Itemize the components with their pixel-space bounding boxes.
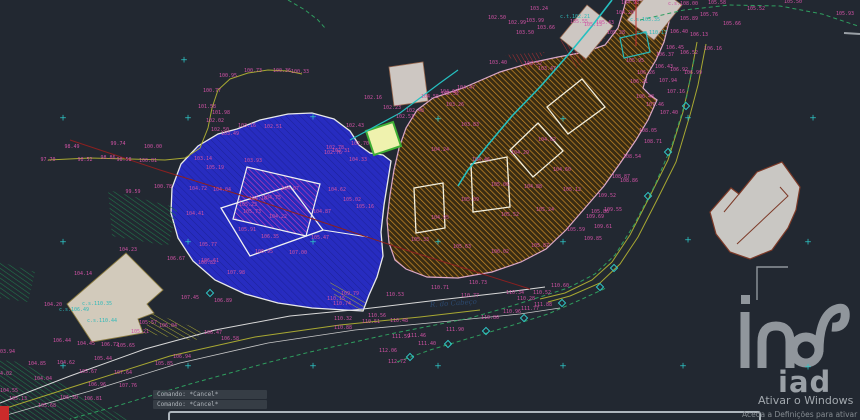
elevation-label: 107.45 (181, 295, 199, 301)
elevation-label: c.s.110.17 (637, 30, 667, 36)
grid-cross-icon: + (59, 115, 67, 124)
windows-activation-subtitle: Aceda a Definições para ativar o Windows… (742, 410, 860, 419)
elevation-label: 107.64 (114, 370, 132, 376)
elevation-label: 107.94 (659, 78, 677, 84)
elevation-label: 100.00 (144, 144, 162, 150)
elevation-label: 106.99 (684, 70, 702, 76)
grid-cross-icon: + (309, 114, 317, 123)
elevation-label: 104.04 (213, 187, 231, 193)
elevation-label: 110.86 (481, 315, 499, 321)
elevation-label: 112.72 (388, 359, 406, 365)
elevation-label: 104.23 (119, 247, 137, 253)
elevation-label: 110.53 (386, 292, 404, 298)
elevation-label: 107.00 (289, 250, 307, 256)
elevation-label: 105.73 (243, 209, 261, 215)
grid-cross-icon: + (59, 363, 67, 372)
building-right-large[interactable] (710, 162, 800, 259)
elevation-label: 106.16 (704, 46, 722, 52)
elevation-label: 106.35 (261, 234, 279, 240)
elevation-label: 102.02 (206, 118, 224, 124)
elevation-label: 106.89 (214, 298, 232, 304)
elevation-label: 104.47 (457, 85, 475, 91)
elevation-label: 100.33 (291, 69, 309, 75)
parcel-b-boundary[interactable] (387, 0, 671, 278)
elevation-label: 106.82 (198, 260, 216, 266)
elevation-label: 104.24 (431, 147, 449, 153)
elevation-label: 104.93 (621, 0, 639, 6)
elevation-label: 106.40 (670, 29, 688, 35)
elevation-label: 102.78 (326, 145, 344, 151)
elevation-label: 105.28 (607, 30, 625, 36)
elevation-label: 100.36 (273, 68, 291, 74)
grid-cross-icon: + (684, 115, 692, 124)
elevation-label: 104.62 (328, 187, 346, 193)
grid-cross-icon: + (180, 57, 188, 66)
elevation-label: 105.50 (784, 0, 802, 5)
elevation-label: 98.58 (116, 157, 131, 163)
elevation-label: 104.07 (281, 186, 299, 192)
elevation-label: 110.60 (551, 283, 569, 289)
elevation-label: 106.81 (84, 396, 102, 402)
elevation-label: 106.04 (159, 323, 177, 329)
grid-cross-icon: + (184, 115, 192, 124)
elevation-label: 108.54 (623, 154, 641, 160)
elevation-label: 103.14 (194, 156, 212, 162)
grid-cross-icon: + (434, 116, 442, 125)
elevation-label: 102.51 (264, 124, 282, 130)
elevation-label: 110.88 (334, 325, 352, 331)
elevation-label: 104.14 (74, 271, 92, 277)
elevation-label: 102.53 (396, 114, 414, 120)
elevation-label: 103.47 (538, 66, 556, 72)
elevation-label: 105.68 (38, 403, 56, 409)
elevation-label: 104.85 (28, 361, 46, 367)
elevation-label: 106.37 (656, 52, 674, 58)
elevation-label: 107.76 (119, 383, 137, 389)
elevation-label: 110.96 (503, 309, 521, 315)
elevation-label: 109.85 (584, 236, 602, 242)
elevation-label: 106.96 (88, 382, 106, 388)
elevation-label: 105.66 (723, 21, 741, 27)
elevation-label: 106.44 (53, 338, 71, 344)
elevation-label: 103.99 (526, 18, 544, 24)
elevation-label: 104.55 (0, 388, 18, 394)
elevation-label: 104.20 (616, 10, 634, 16)
drawing-canvas (0, 0, 860, 420)
elevation-label: 111.46 (408, 333, 426, 339)
elevation-label: 106.95 (255, 249, 273, 255)
elevation-label: 103.94 (0, 349, 15, 355)
elevation-label: 110.32 (334, 316, 352, 322)
cad-viewport[interactable]: 97.7098.4998.5298.8698.5899.74100.00100.… (0, 0, 860, 420)
elevation-label: 104.04 (34, 376, 52, 382)
grid-cross-icon: + (434, 363, 442, 372)
elevation-label: 98.52 (77, 157, 92, 163)
elevation-label: 105.52 (501, 212, 519, 218)
elevation-label: 104.20 (44, 302, 62, 308)
grid-cross-icon: + (684, 237, 692, 246)
grid-cross-icon: + (804, 239, 812, 248)
elevation-label: 103.83 (461, 122, 479, 128)
elevation-label: 103.26 (446, 102, 464, 108)
elevation-label: 105.87 (531, 243, 549, 249)
elevation-label: 111.40 (418, 341, 436, 347)
parcel-b-orange[interactable] (387, 0, 671, 278)
contour-top-center (288, 0, 325, 28)
elevation-label: 104.72 (189, 186, 207, 192)
elevation-label: 112.06 (379, 348, 397, 354)
elevation-label: 109.52 (598, 193, 616, 199)
grid-cross-icon: + (679, 363, 687, 372)
elevation-label: 107.40 (660, 110, 678, 116)
elevation-label: 104.33 (349, 157, 367, 163)
elevation-label: 104.88 (524, 184, 542, 190)
elevation-label: 100.78 (154, 184, 172, 190)
elevation-label: 98.86 (100, 155, 115, 161)
elevation-label: 105.95 (626, 58, 644, 64)
elevation-label: 105.12 (563, 187, 581, 193)
elevation-label: 105.44 (94, 356, 112, 362)
elevation-label: 97.70 (40, 157, 55, 163)
elevation-label: 105.02 (343, 197, 361, 203)
elevation-label: 105.63 (453, 244, 471, 250)
elevation-label: 108.86 (620, 178, 638, 184)
elevation-label: c.t.102.21 (560, 14, 590, 20)
command-input-bar[interactable] (168, 411, 761, 420)
elevation-label: 108.05 (639, 128, 657, 134)
elevation-label: 103.49 (221, 131, 239, 137)
elevation-label: 106.52 (680, 50, 698, 56)
elevation-label: 104.87 (313, 209, 331, 215)
elevation-label: 105.93 (836, 11, 854, 17)
elevation-label: 105.33 (411, 237, 429, 243)
elevation-label: 100.81 (139, 158, 157, 164)
elevation-label: c.s.106.49 (59, 307, 89, 313)
elevation-label: 106.30 (60, 395, 78, 401)
elevation-label: 110.28 (517, 296, 535, 302)
elevation-label: 102.23 (383, 105, 401, 111)
elevation-label: 110.73 (469, 280, 487, 286)
elevation-label: 102.50 (488, 15, 506, 21)
red-marker-corner (0, 406, 9, 420)
elevation-label: 105.65 (117, 343, 135, 349)
elevation-label: 98.49 (64, 144, 79, 150)
grid-cross-icon: + (809, 115, 817, 124)
elevation-label: 103.40 (489, 60, 507, 66)
elevation-label: 105.67 (79, 369, 97, 375)
elevation-label: 102.43 (346, 123, 364, 129)
elevation-label: 105.52 (747, 6, 765, 12)
grid-cross-icon: + (59, 239, 67, 248)
grid-cross-icon: + (559, 116, 567, 125)
elevation-label: 104.75 (263, 195, 281, 201)
elevation-label: 104.22 (269, 214, 287, 220)
slope-hatch-edge (0, 262, 35, 302)
elevation-label: c.s.108.00 (668, 1, 698, 7)
elevation-label: 105.06 (491, 182, 509, 188)
elevation-label: 104.45 (77, 341, 95, 347)
elevation-label: 102.70 (351, 141, 369, 147)
elevation-label: 105.43 (596, 20, 614, 26)
elevation-label: 109.61 (594, 224, 612, 230)
elevation-label: 105.13 (9, 396, 27, 402)
iad-logo-monogram (741, 267, 845, 368)
elevation-label: 111.90 (446, 327, 464, 333)
elevation-label: 105.24 (536, 207, 554, 213)
elevation-label: 110.74 (333, 301, 351, 307)
grid-cross-icon: + (434, 239, 442, 248)
elevation-label: 105.23 (239, 202, 257, 208)
elevation-label: 105.86 (591, 209, 609, 215)
building-highlighted-yellow[interactable] (366, 122, 401, 155)
elevation-label: 107.46 (646, 102, 664, 108)
elevation-label: 110.52 (533, 290, 551, 296)
elevation-label: 106.48 (636, 94, 654, 100)
elevation-label: 106.94 (173, 354, 191, 360)
elevation-label: 106.26 (637, 70, 655, 76)
elevation-label: 105.16 (356, 204, 374, 210)
elevation-label: 100.73 (244, 68, 262, 74)
elevation-label: 110.48 (390, 318, 408, 324)
elevation-label: 99.59 (125, 189, 140, 195)
elevation-label: 104.41 (186, 211, 204, 217)
elevation-label: 108.71 (644, 139, 662, 145)
elevation-label: 102.52 (441, 91, 459, 97)
elevation-label: 105.09 (461, 197, 479, 203)
elevation-label: 104.29 (511, 150, 529, 156)
elevation-label: 106.58 (221, 336, 239, 342)
elevation-label: 107.16 (667, 89, 685, 95)
elevation-label: 103.50 (516, 30, 534, 36)
elevation-label: 99.74 (110, 141, 125, 147)
elevation-label: 105.76 (700, 12, 718, 18)
elevation-label: 105.58 (708, 0, 726, 6)
elevation-label: 100.77 (203, 88, 221, 94)
elevation-label: 106.02 (491, 249, 509, 255)
elevation-label: 105.85 (155, 361, 173, 367)
windows-activation-title: Ativar o Windows (758, 394, 860, 407)
command-history-line-1: Comando: *Cancel* (153, 390, 267, 399)
elevation-label: 100.95 (219, 73, 237, 79)
elevation-label: 106.13 (690, 32, 708, 38)
elevation-label: 107.98 (227, 270, 245, 276)
elevation-label: 103.93 (244, 158, 262, 164)
slope-hatch-left (108, 190, 178, 246)
elevation-label: 104.60 (553, 167, 571, 173)
contour-lower (397, 288, 606, 362)
grid-cross-icon: + (309, 363, 317, 372)
elevation-label: 106.21 (630, 79, 648, 85)
grid-cross-icon: + (184, 363, 192, 372)
grid-cross-icon: + (559, 239, 567, 248)
elevation-label: 103.16 (238, 123, 256, 129)
elevation-label: c.s.110.44 (87, 318, 117, 324)
elevation-label: 102.16 (364, 95, 382, 101)
elevation-label: 105.89 (680, 16, 698, 22)
elevation-label: 110.51 (362, 319, 380, 325)
elevation-label: c.s.103.35 (630, 17, 660, 23)
elevation-label: 101.98 (212, 110, 230, 116)
elevation-label: 102.99 (508, 20, 526, 26)
elevation-label: 109.79 (341, 291, 359, 297)
grid-cross-icon: + (559, 363, 567, 372)
elevation-label: 105.91 (238, 227, 256, 233)
elevation-label: 105.59 (567, 227, 585, 233)
elevation-label: 103.66 (537, 25, 555, 31)
elevation-label: 110.71 (431, 285, 449, 291)
grid-cross-icon: + (184, 239, 192, 248)
elevation-label: 104.02 (0, 371, 12, 377)
elevation-label: 104.55 (421, 94, 439, 100)
elevation-label: 104.95 (431, 215, 449, 221)
gray-tick (844, 33, 860, 34)
elevation-label: 103.24 (530, 6, 548, 12)
elevation-label: 105.19 (206, 165, 224, 171)
elevation-label: 104.46 (472, 157, 490, 163)
elevation-label: 106.47 (204, 330, 222, 336)
elevation-label: 105.21 (131, 329, 149, 335)
grid-cross-icon: + (309, 239, 317, 248)
elevation-label: 105.77 (199, 242, 217, 248)
elevation-label: 105.57 (139, 320, 157, 326)
elevation-label: 106.67 (167, 256, 185, 262)
elevation-label: 111.77 (521, 306, 539, 312)
command-history-line-2: Comando: *Cancel* (153, 400, 267, 409)
elevation-label: 104.02 (538, 137, 556, 143)
